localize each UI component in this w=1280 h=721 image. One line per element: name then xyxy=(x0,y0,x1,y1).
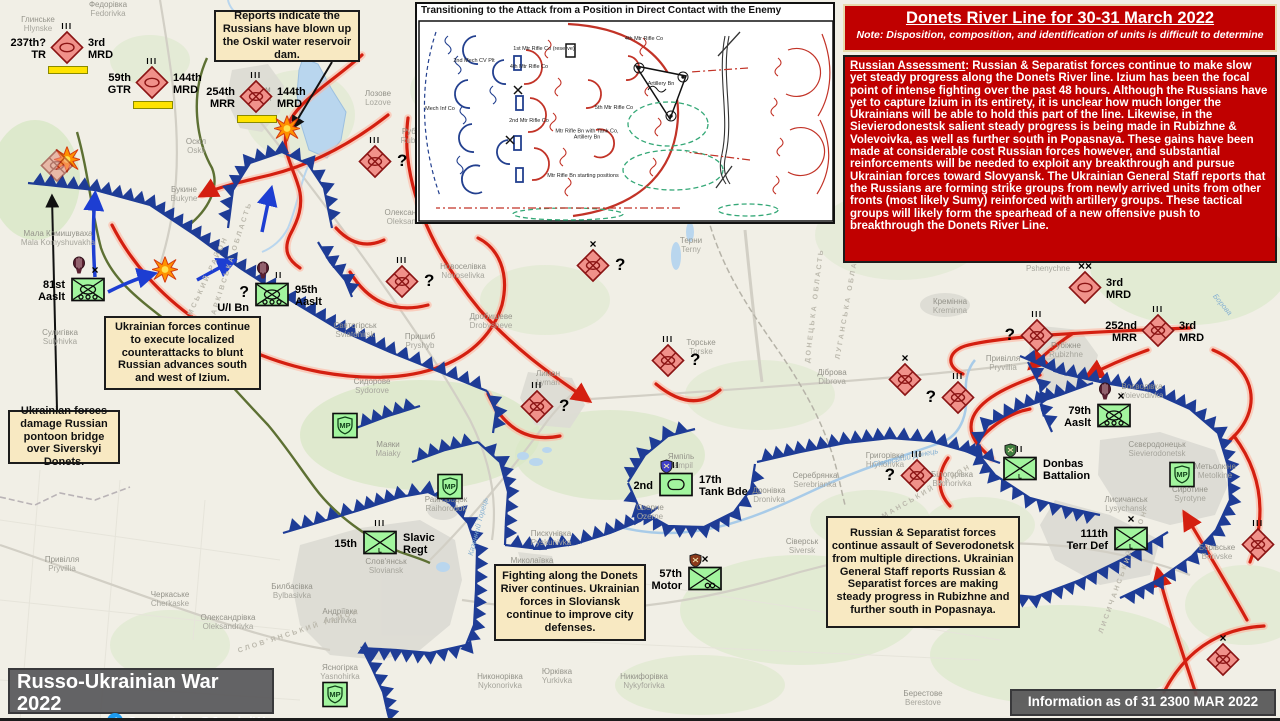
svg-text:MP: MP xyxy=(444,482,455,491)
unit-echelon: × xyxy=(1127,512,1134,526)
unit-echelon: × xyxy=(1117,389,1124,403)
unit-unknown-question-mark: ? xyxy=(690,350,700,370)
unit-echelon: III xyxy=(662,335,673,344)
situation-map: ГлинськеHlynskeФедорівкаFedorivkaІзюмIzi… xyxy=(0,0,1280,721)
unit-unknown-question-mark: ? xyxy=(559,396,569,416)
callout-box: Fighting along the Donets River continue… xyxy=(494,564,646,641)
svg-text:MP: MP xyxy=(339,421,350,430)
counterattack-arrow xyxy=(108,274,153,292)
ukrainian-unit-symbol xyxy=(70,277,106,308)
callout-box: Reports indicate the Russians have blown… xyxy=(214,10,360,62)
banner-credit: Created by @JominiW xyxy=(127,714,265,721)
assessment-box: Russian Assessment: Russian & Separatist… xyxy=(843,55,1277,263)
unit-label: 79thAaslt xyxy=(1064,405,1091,429)
unit-label: 3rdMRD xyxy=(1179,320,1204,344)
unit-label: 95thAaslt xyxy=(295,284,322,308)
map-title: Donets River Line for 30-31 March 2022 xyxy=(845,9,1275,28)
callout-box: Russian & Separatist forces continue ass… xyxy=(826,516,1020,628)
ukrainian-unit-symbol: MP xyxy=(1169,461,1196,493)
unit-echelon: × xyxy=(901,351,908,365)
callout-text: Ukrainian forces damage Russian pontoon … xyxy=(13,405,115,470)
unit-echelon: × xyxy=(589,237,596,251)
formation-shield-icon xyxy=(689,553,702,573)
air-assault-balloon-icon xyxy=(1098,382,1112,406)
callout-box: Ukrainian forces continue to execute loc… xyxy=(104,316,261,390)
callout-box: Ukrainian forces damage Russian pontoon … xyxy=(8,410,120,464)
unit-echelon: II xyxy=(1016,445,1023,454)
russian-unit-symbol xyxy=(358,145,392,184)
unit-label: 17thTank Bde xyxy=(699,474,748,498)
unit-echelon: III xyxy=(531,381,542,390)
counterattack-arrow xyxy=(262,190,271,232)
unit-label: SlavicRegt xyxy=(403,532,435,556)
defense-line xyxy=(318,242,352,297)
unit-unknown-question-mark: ? xyxy=(1005,325,1015,345)
unit-echelon: III xyxy=(911,450,922,459)
unit-label: 2nd xyxy=(633,480,653,492)
russian-unit-symbol xyxy=(239,80,273,119)
inset-unit-label: Mech Inf Co xyxy=(404,106,476,112)
formation-shield-icon xyxy=(660,459,673,479)
inset-unit-label: Mtr Rifle Bn with Tank Co, Artillery Bn xyxy=(551,129,623,142)
russian-unit-symbol xyxy=(888,363,922,402)
inset-unit-label: 4th Mtr Rifle Co xyxy=(493,64,565,70)
unit-echelon: III xyxy=(61,22,72,31)
unit-echelon: × xyxy=(91,263,98,277)
unit-label: 254thMRR xyxy=(206,86,235,110)
ukrainian-unit-symbol xyxy=(254,282,290,313)
unit-label: 144thMRD xyxy=(173,72,202,96)
explosion-icon xyxy=(152,257,178,288)
russian-unit-symbol xyxy=(40,149,74,188)
inset-diagram xyxy=(418,20,834,222)
defense-line xyxy=(478,442,508,545)
map-title-note: Note: Disposition, composition, and iden… xyxy=(845,29,1275,41)
assessment-body: : Russian & Separatist forces continue t… xyxy=(850,60,1267,232)
russian-unit-symbol xyxy=(941,381,975,420)
russian-unit-symbol xyxy=(1206,643,1240,682)
inset-unit-label: Artillery Bn xyxy=(625,81,697,87)
ukrainian-unit-symbol: MP xyxy=(437,473,464,505)
ukrainian-unit-symbol: L xyxy=(1113,526,1149,557)
unit-echelon: III xyxy=(250,71,261,80)
unit-echelon: III xyxy=(1252,519,1263,528)
unit-label: ?U/I Bn xyxy=(217,284,249,314)
unit-label: 81stAaslt xyxy=(38,279,65,303)
unit-unknown-question-mark: ? xyxy=(424,271,434,291)
russian-unit-symbol xyxy=(1141,314,1175,353)
russian-unit-symbol xyxy=(576,249,610,288)
unit-echelon: × xyxy=(701,552,708,566)
unit-label: 59thGTR xyxy=(108,72,131,96)
russian-unit-symbol xyxy=(1241,528,1275,567)
unit-label: 15th xyxy=(334,538,357,550)
inset-unit-label: 4th Mtr Rifle Co xyxy=(608,36,680,42)
callout-text: Russian & Separatist forces continue ass… xyxy=(831,527,1015,618)
twitter-bird-icon xyxy=(107,713,123,721)
credit-banner: Russo-Ukrainian War 2022 Created by @Jom… xyxy=(8,668,274,714)
inset-unit-label: 2nd Mech CV Plt xyxy=(438,58,510,64)
callout-text: Reports indicate the Russians have blown… xyxy=(219,10,355,62)
unit-label: 252ndMRR xyxy=(1105,320,1137,344)
unit-echelon: × xyxy=(1219,631,1226,645)
inset-unit-label: 5th Mtr Rifle Co xyxy=(578,105,650,111)
banner-title: Russo-Ukrainian War 2022 xyxy=(17,671,265,715)
inset-unit-label: Mtr Rifle Bn starting positions xyxy=(547,173,619,179)
callout-text: Fighting along the Donets River continue… xyxy=(499,570,641,635)
doctrine-inset: Transitioning to the Attack from a Posit… xyxy=(415,2,835,224)
svg-text:MP: MP xyxy=(329,690,340,699)
russian-unit-symbol xyxy=(900,459,934,498)
svg-text:L: L xyxy=(1018,475,1022,481)
russian-unit-symbol xyxy=(520,390,554,429)
inset-unit-label: 1st Mtr Rifle Co (reserve) xyxy=(508,46,580,52)
defense-line xyxy=(505,507,658,549)
unit-unknown-question-mark: ? xyxy=(615,255,625,275)
formation-shield-icon xyxy=(1004,443,1017,463)
unit-unknown-question-mark: ? xyxy=(885,465,895,485)
russian-unit-symbol xyxy=(1020,319,1054,358)
unit-echelon: III xyxy=(396,256,407,265)
svg-text:L: L xyxy=(378,549,382,555)
defense-line xyxy=(975,383,1100,515)
russian-unit-symbol xyxy=(1068,271,1102,310)
assessment-heading: Russian Assessment xyxy=(850,60,965,72)
explosion-icon xyxy=(274,116,300,147)
unit-echelon: III xyxy=(1031,310,1042,319)
unit-echelon: III xyxy=(1152,305,1163,314)
ukrainian-unit-symbol: MP xyxy=(322,681,349,713)
russian-unit-symbol xyxy=(385,265,419,304)
defense-line xyxy=(356,406,420,428)
unit-label: 3rdMRD xyxy=(88,37,113,61)
ukrainian-unit-symbol: L xyxy=(362,530,398,561)
map-title-box: Donets River Line for 30-31 March 2022 N… xyxy=(843,4,1277,52)
unit-echelon: II xyxy=(275,271,282,280)
unit-echelon: II xyxy=(672,461,679,470)
callout-text: Ukrainian forces continue to execute loc… xyxy=(109,321,256,386)
unit-label: 237th?TR xyxy=(11,37,46,61)
unit-label: 3rdMRD xyxy=(1106,277,1131,301)
unit-label: 144thMRD xyxy=(277,86,306,110)
russian-unit-symbol xyxy=(50,31,84,70)
ukrainian-unit-symbol xyxy=(1096,403,1132,434)
defense-line xyxy=(412,442,478,462)
air-assault-balloon-icon xyxy=(72,256,86,280)
unit-label: 111thTerr Def xyxy=(1067,528,1108,552)
unit-label: DonbasBattalion xyxy=(1043,458,1090,482)
ukrainian-unit-symbol: MP xyxy=(332,412,359,444)
svg-text:MP: MP xyxy=(1176,470,1187,479)
unit-echelon: III xyxy=(369,136,380,145)
unit-echelon: III xyxy=(146,57,157,66)
unit-echelon: III xyxy=(374,519,385,528)
russian-unit-symbol xyxy=(651,344,685,383)
inset-title: Transitioning to the Attack from a Posit… xyxy=(421,5,781,16)
russian-unit-symbol xyxy=(135,66,169,105)
inset-unit-label: 2nd Mtr Rifle Co xyxy=(493,118,565,124)
unit-echelon: III xyxy=(952,372,963,381)
svg-text:L: L xyxy=(1129,545,1133,551)
unit-unknown-question-mark: ? xyxy=(397,151,407,171)
info-box: Information as of 31 2300 MAR 2022 (GMT) xyxy=(1010,689,1276,716)
attack-arrow xyxy=(1088,350,1148,376)
air-assault-balloon-icon xyxy=(256,261,270,285)
unit-label: 57thMotor xyxy=(651,568,682,592)
unit-unknown-question-mark: ? xyxy=(926,387,936,407)
